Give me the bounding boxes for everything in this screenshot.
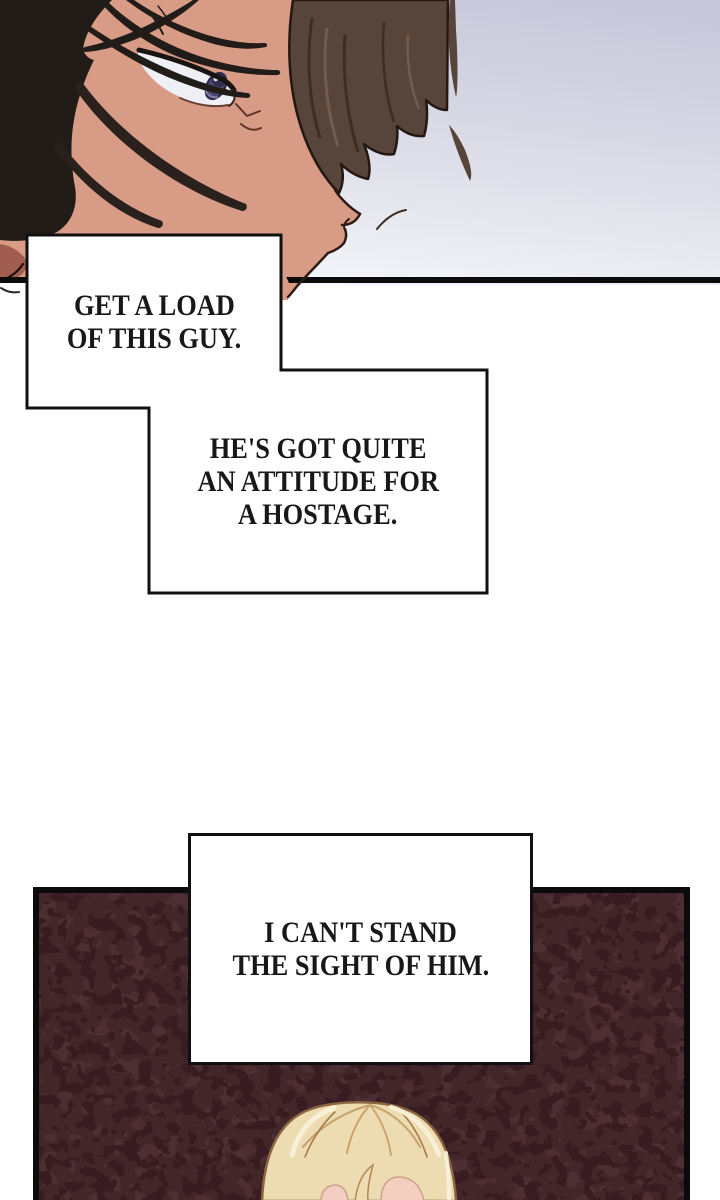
dialogue-line: A HOSTAGE. [238,498,397,531]
speech-bubble-3: I CAN'T STAND THE SIGHT OF HIM. [188,833,533,1065]
dialogue-line: THE SIGHT OF HIM. [232,949,489,982]
comic-page: GET A LOAD OF THIS GUY. HE'S GOT QUITE A… [0,0,720,1200]
dialogue-line: HE'S GOT QUITE [210,432,427,465]
dialogue-line: GET A LOAD [74,289,235,322]
dialogue-line: I CAN'T STAND [264,916,457,949]
speech-bubble-2: HE'S GOT QUITE AN ATTITUDE FOR A HOSTAGE… [149,370,487,593]
dialogue-line: OF THIS GUY. [67,322,241,355]
dialogue-line: AN ATTITUDE FOR [197,465,439,498]
